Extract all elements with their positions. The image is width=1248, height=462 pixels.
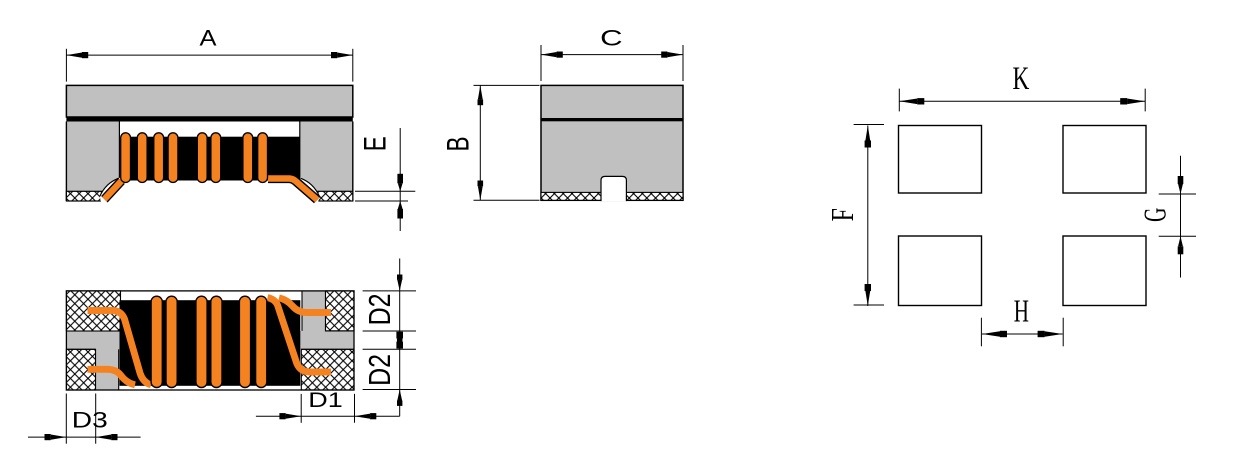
svg-text:H: H <box>1014 294 1029 329</box>
svg-text:D2: D2 <box>363 293 397 325</box>
svg-text:B: B <box>440 137 476 152</box>
svg-text:D1: D1 <box>308 389 343 412</box>
svg-text:C: C <box>600 25 623 50</box>
svg-text:D2: D2 <box>363 354 397 386</box>
svg-text:G: G <box>1137 208 1172 222</box>
svg-text:E: E <box>358 136 393 151</box>
svg-text:A: A <box>200 25 217 50</box>
svg-text:K: K <box>1013 61 1030 97</box>
svg-text:F: F <box>825 208 860 221</box>
svg-text:D3: D3 <box>72 408 108 433</box>
